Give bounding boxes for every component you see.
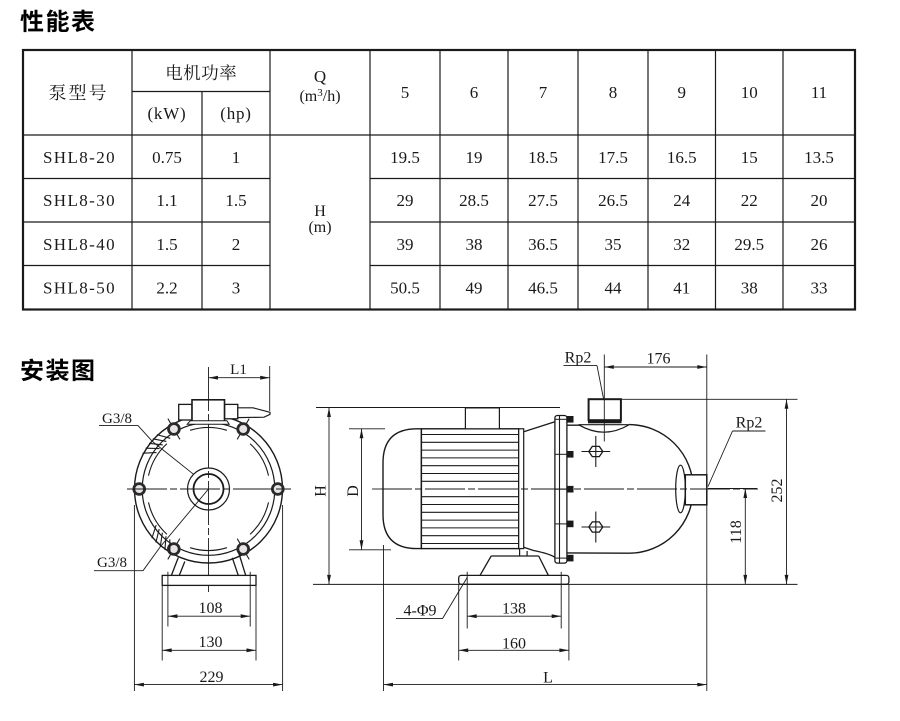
svg-text:252: 252 (769, 479, 786, 503)
svg-text:13.5: 13.5 (804, 148, 834, 167)
svg-text:32: 32 (673, 235, 690, 254)
svg-text:(m): (m) (308, 219, 331, 236)
svg-text:6: 6 (470, 83, 479, 102)
svg-text:26: 26 (811, 235, 828, 254)
svg-text:38: 38 (466, 235, 483, 254)
svg-text:28.5: 28.5 (459, 191, 489, 210)
svg-text:22: 22 (741, 191, 758, 210)
svg-text:19: 19 (466, 148, 483, 167)
svg-text:10: 10 (741, 83, 758, 102)
svg-text:1.5: 1.5 (156, 235, 177, 254)
svg-text:41: 41 (673, 279, 690, 298)
svg-text:229: 229 (200, 669, 224, 686)
svg-text:G3/8: G3/8 (97, 555, 127, 571)
svg-text:Rp2: Rp2 (565, 350, 592, 367)
svg-text:29.5: 29.5 (734, 235, 764, 254)
svg-text:H: H (313, 485, 330, 497)
svg-text:0.75: 0.75 (152, 148, 182, 167)
svg-text:8: 8 (609, 83, 618, 102)
svg-text:(hp): (hp) (220, 104, 252, 123)
svg-text:160: 160 (502, 636, 526, 653)
svg-text:D: D (345, 485, 362, 497)
svg-text:SHL8-20: SHL8-20 (43, 148, 116, 167)
svg-text:49: 49 (466, 279, 483, 298)
svg-text:33: 33 (811, 279, 828, 298)
svg-text:29: 29 (397, 191, 414, 210)
svg-text:17.5: 17.5 (598, 148, 628, 167)
svg-text:7: 7 (539, 83, 548, 102)
svg-text:SHL8-40: SHL8-40 (43, 235, 116, 254)
svg-text:26.5: 26.5 (598, 191, 628, 210)
svg-text:(kW): (kW) (147, 104, 186, 123)
svg-text:1: 1 (232, 148, 241, 167)
svg-text:2.2: 2.2 (156, 279, 177, 298)
svg-text:H: H (314, 203, 326, 220)
svg-text:44: 44 (605, 279, 623, 298)
svg-text:19.5: 19.5 (390, 148, 420, 167)
svg-text:38: 38 (741, 279, 758, 298)
svg-text:SHL8-30: SHL8-30 (43, 191, 116, 210)
svg-text:Rp2: Rp2 (736, 415, 763, 432)
svg-text:176: 176 (647, 351, 671, 368)
svg-text:G3/8: G3/8 (102, 411, 132, 427)
svg-text:4-Φ9: 4-Φ9 (403, 603, 436, 620)
svg-text:108: 108 (199, 600, 223, 617)
svg-text:5: 5 (401, 83, 410, 102)
svg-text:2: 2 (232, 235, 241, 254)
svg-text:130: 130 (199, 634, 223, 651)
svg-text:1.1: 1.1 (156, 191, 177, 210)
svg-text:39: 39 (397, 235, 414, 254)
svg-text:50.5: 50.5 (390, 279, 420, 298)
svg-text:20: 20 (811, 191, 828, 210)
svg-text:24: 24 (673, 191, 691, 210)
svg-text:18.5: 18.5 (528, 148, 558, 167)
svg-text:11: 11 (811, 83, 827, 102)
svg-text:SHL8-50: SHL8-50 (43, 279, 116, 298)
svg-text:15: 15 (741, 148, 758, 167)
svg-text:46.5: 46.5 (528, 279, 558, 298)
svg-text:9: 9 (678, 83, 687, 102)
svg-text:16.5: 16.5 (667, 148, 697, 167)
svg-text:3: 3 (232, 279, 241, 298)
svg-text:L1: L1 (230, 362, 247, 378)
svg-text:35: 35 (605, 235, 622, 254)
svg-text:138: 138 (502, 601, 526, 618)
svg-text:36.5: 36.5 (528, 235, 558, 254)
svg-text:L: L (543, 670, 553, 687)
svg-text:1.5: 1.5 (225, 191, 246, 210)
svg-text:Q: Q (314, 67, 326, 86)
svg-text:27.5: 27.5 (528, 191, 558, 210)
svg-text:118: 118 (728, 520, 745, 543)
